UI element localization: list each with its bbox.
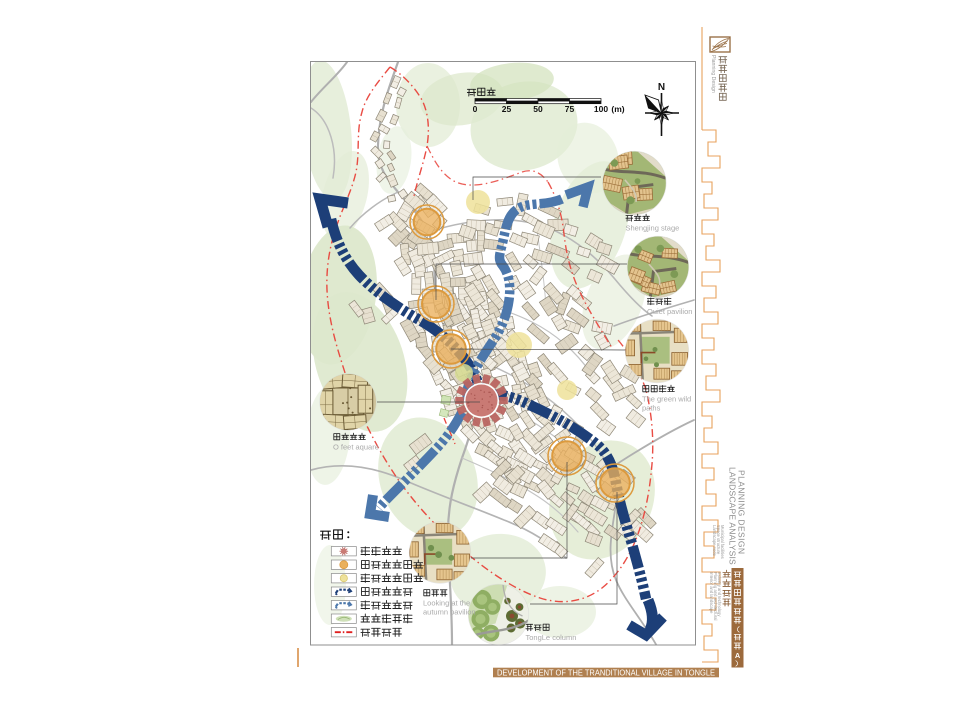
svg-text:TongLe column: TongLe column — [526, 633, 577, 642]
svg-text:The green wild: The green wild — [642, 395, 691, 404]
svg-text:50: 50 — [533, 104, 543, 114]
svg-text:LANDSCAPE ANALYSIS: LANDSCAPE ANALYSIS — [728, 467, 738, 565]
svg-text:Looking at the: Looking at the — [423, 599, 470, 608]
svg-text:Interior and landscape: Interior and landscape — [709, 572, 714, 614]
svg-text:75: 75 — [565, 104, 575, 114]
svg-text:O feet aquare: O feet aquare — [333, 443, 379, 452]
svg-text:Municipal facilities: Municipal facilities — [720, 525, 725, 559]
svg-text:DEVELOPMENT OF THE TRANDITIONA: DEVELOPMENT OF THE TRANDITIONAL VILLAGE … — [497, 668, 715, 678]
svg-text:Landscape node: Landscape node — [712, 525, 717, 557]
svg-text:25: 25 — [502, 104, 512, 114]
svg-text:N: N — [658, 82, 665, 93]
svg-text:paths: paths — [642, 404, 661, 413]
svg-text:Shengjing stage: Shengjing stage — [626, 224, 680, 233]
svg-text:autumn pavilion: autumn pavilion — [423, 608, 476, 617]
svg-text:(m): (m) — [611, 104, 624, 114]
svg-text:Planning Design: Planning Design — [710, 55, 716, 93]
svg-text:A: A — [735, 651, 741, 660]
svg-text:Quiet pavilion: Quiet pavilion — [647, 307, 692, 316]
svg-text:100: 100 — [594, 104, 608, 114]
svg-text:Industry and technology: Industry and technology — [717, 572, 722, 617]
svg-text:0: 0 — [473, 104, 478, 114]
